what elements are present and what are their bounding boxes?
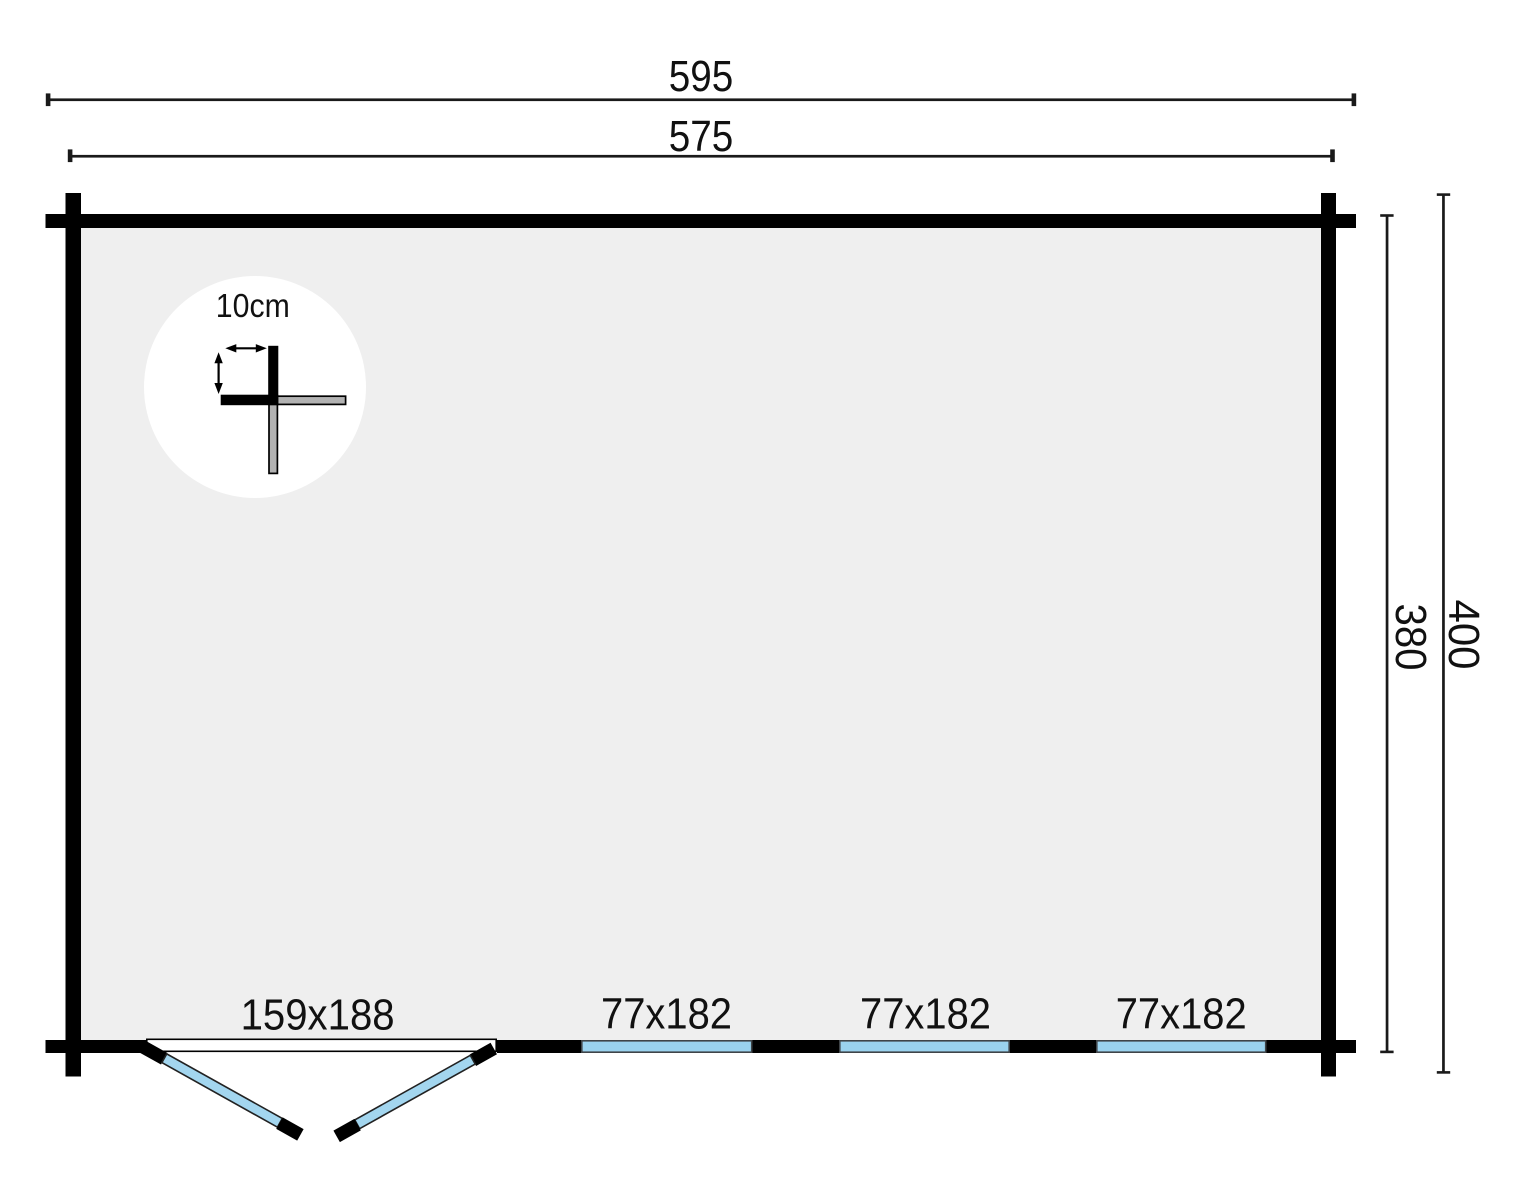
svg-text:159x188: 159x188 (241, 991, 395, 1039)
svg-text:575: 575 (669, 113, 734, 161)
svg-text:77x182: 77x182 (601, 991, 732, 1039)
svg-text:10cm: 10cm (216, 288, 290, 325)
svg-text:77x182: 77x182 (1116, 991, 1247, 1039)
svg-text:77x182: 77x182 (860, 991, 991, 1039)
svg-text:400: 400 (1439, 600, 1487, 670)
svg-text:380: 380 (1386, 604, 1434, 671)
svg-text:595: 595 (669, 53, 734, 101)
